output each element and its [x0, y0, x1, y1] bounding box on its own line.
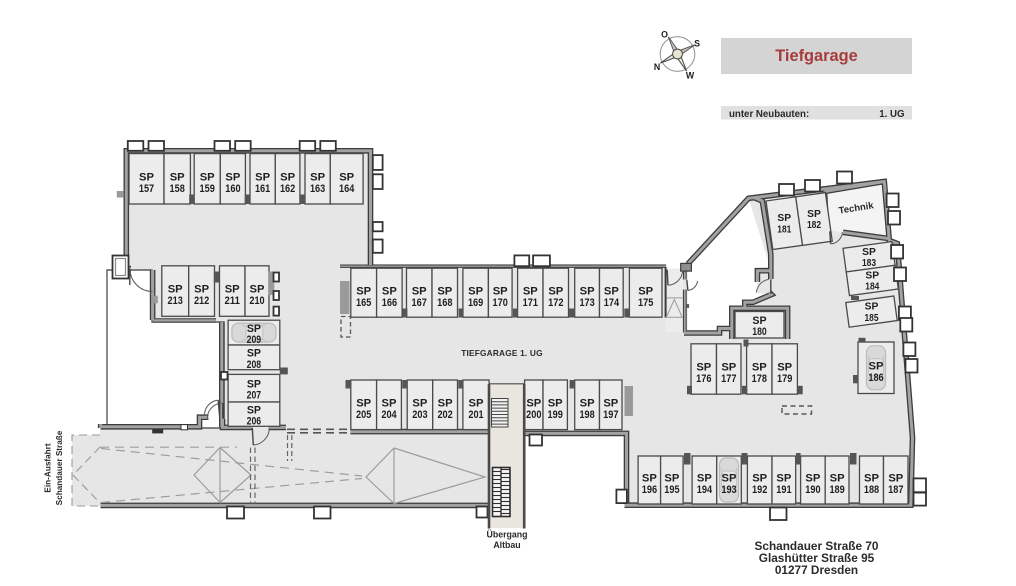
- svg-text:SP: SP: [255, 171, 270, 183]
- svg-text:SP: SP: [356, 285, 371, 297]
- svg-text:193: 193: [721, 484, 736, 496]
- svg-text:201: 201: [468, 409, 483, 421]
- svg-text:199: 199: [548, 409, 563, 421]
- svg-text:SP: SP: [339, 171, 354, 183]
- svg-text:SP: SP: [412, 397, 427, 409]
- svg-text:SP: SP: [310, 171, 325, 183]
- svg-text:SP: SP: [722, 473, 737, 485]
- svg-text:SP: SP: [752, 315, 766, 327]
- svg-text:204: 204: [381, 409, 397, 421]
- svg-text:SP: SP: [382, 285, 397, 297]
- svg-text:Übergang: Übergang: [486, 530, 527, 540]
- svg-text:157: 157: [139, 183, 154, 195]
- svg-text:170: 170: [493, 297, 508, 309]
- svg-text:173: 173: [579, 297, 594, 309]
- svg-text:208: 208: [247, 359, 262, 371]
- svg-text:206: 206: [247, 416, 262, 428]
- svg-text:unter Neubauten:: unter Neubauten:: [729, 109, 809, 120]
- svg-text:190: 190: [805, 484, 820, 496]
- svg-text:SP: SP: [548, 397, 563, 409]
- svg-text:SP: SP: [247, 378, 261, 390]
- svg-text:TIEFGARAGE 1. UG: TIEFGARAGE 1. UG: [461, 348, 543, 358]
- svg-text:SP: SP: [225, 284, 240, 296]
- svg-text:160: 160: [225, 183, 240, 195]
- svg-text:SP: SP: [830, 473, 845, 485]
- svg-text:SP: SP: [247, 404, 261, 416]
- svg-text:SP: SP: [200, 171, 215, 183]
- svg-text:210: 210: [249, 295, 264, 307]
- svg-text:180: 180: [752, 326, 767, 338]
- svg-text:177: 177: [721, 373, 736, 385]
- svg-text:169: 169: [468, 297, 483, 309]
- svg-text:184: 184: [865, 282, 879, 293]
- svg-text:191: 191: [776, 484, 791, 496]
- svg-text:181: 181: [777, 224, 791, 235]
- svg-text:SP: SP: [412, 285, 427, 297]
- svg-text:SP: SP: [697, 473, 712, 485]
- svg-text:198: 198: [579, 409, 594, 421]
- svg-text:Altbau: Altbau: [493, 540, 520, 550]
- svg-text:01277 Dresden: 01277 Dresden: [775, 563, 858, 577]
- svg-text:166: 166: [382, 297, 397, 309]
- svg-text:SP: SP: [437, 285, 452, 297]
- svg-text:SP: SP: [247, 323, 261, 335]
- svg-text:SP: SP: [250, 284, 265, 296]
- svg-text:207: 207: [247, 390, 262, 402]
- svg-text:161: 161: [255, 183, 270, 195]
- svg-text:194: 194: [697, 484, 713, 496]
- svg-text:SP: SP: [888, 473, 903, 485]
- svg-text:Ein-Ausfahrt: Ein-Ausfahrt: [44, 443, 53, 492]
- svg-text:SP: SP: [247, 348, 261, 360]
- svg-text:S: S: [694, 39, 700, 49]
- svg-text:SP: SP: [603, 397, 618, 409]
- svg-text:174: 174: [604, 297, 620, 309]
- svg-text:195: 195: [664, 484, 679, 496]
- svg-text:182: 182: [807, 220, 821, 231]
- svg-text:SP: SP: [865, 302, 879, 313]
- svg-text:SP: SP: [548, 285, 563, 297]
- svg-text:Tiefgarage: Tiefgarage: [775, 47, 858, 65]
- svg-text:SP: SP: [752, 362, 767, 374]
- svg-text:203: 203: [412, 409, 427, 421]
- svg-text:212: 212: [194, 295, 209, 307]
- svg-text:SP: SP: [862, 247, 876, 258]
- svg-text:171: 171: [523, 297, 538, 309]
- svg-text:187: 187: [888, 484, 903, 496]
- svg-text:SP: SP: [523, 285, 538, 297]
- svg-text:183: 183: [862, 258, 876, 269]
- svg-text:172: 172: [548, 297, 563, 309]
- svg-text:164: 164: [339, 183, 355, 195]
- svg-text:SP: SP: [696, 362, 711, 374]
- svg-text:SP: SP: [580, 285, 595, 297]
- svg-text:197: 197: [603, 409, 618, 421]
- svg-text:SP: SP: [869, 360, 884, 372]
- svg-text:167: 167: [412, 297, 427, 309]
- svg-text:162: 162: [280, 183, 295, 195]
- svg-text:1. UG: 1. UG: [879, 109, 904, 120]
- svg-text:N: N: [654, 62, 660, 72]
- svg-text:213: 213: [168, 295, 183, 307]
- svg-text:200: 200: [526, 409, 541, 421]
- svg-text:SP: SP: [807, 209, 821, 220]
- svg-text:SP: SP: [638, 285, 653, 297]
- svg-text:SP: SP: [776, 473, 791, 485]
- svg-text:179: 179: [777, 373, 792, 385]
- svg-text:189: 189: [829, 484, 844, 496]
- svg-text:159: 159: [200, 183, 215, 195]
- svg-text:168: 168: [437, 297, 452, 309]
- svg-text:192: 192: [752, 484, 767, 496]
- svg-text:SP: SP: [356, 397, 371, 409]
- svg-text:175: 175: [638, 297, 653, 309]
- svg-text:SP: SP: [864, 473, 879, 485]
- svg-text:176: 176: [696, 373, 711, 385]
- svg-text:SP: SP: [777, 213, 791, 224]
- svg-text:SP: SP: [170, 171, 185, 183]
- svg-text:SP: SP: [194, 284, 209, 296]
- svg-text:196: 196: [642, 484, 657, 496]
- svg-text:SP: SP: [664, 473, 679, 485]
- svg-text:163: 163: [310, 183, 325, 195]
- svg-text:O: O: [661, 30, 668, 40]
- svg-text:SP: SP: [777, 362, 792, 374]
- svg-text:SP: SP: [280, 171, 295, 183]
- svg-text:158: 158: [170, 183, 185, 195]
- svg-text:SP: SP: [805, 473, 820, 485]
- svg-text:SP: SP: [469, 397, 484, 409]
- svg-text:211: 211: [225, 295, 240, 307]
- svg-text:SP: SP: [493, 285, 508, 297]
- svg-text:185: 185: [864, 313, 878, 324]
- svg-text:SP: SP: [139, 171, 154, 183]
- svg-text:SP: SP: [168, 284, 183, 296]
- svg-text:SP: SP: [752, 473, 767, 485]
- svg-text:178: 178: [752, 373, 767, 385]
- svg-text:SP: SP: [438, 397, 453, 409]
- svg-text:SP: SP: [604, 285, 619, 297]
- svg-text:165: 165: [356, 297, 371, 309]
- svg-text:W: W: [686, 71, 695, 81]
- svg-text:SP: SP: [865, 271, 879, 282]
- svg-text:SP: SP: [642, 473, 657, 485]
- svg-text:SP: SP: [721, 362, 736, 374]
- svg-text:209: 209: [247, 334, 262, 346]
- svg-text:SP: SP: [526, 397, 541, 409]
- svg-text:SP: SP: [580, 397, 595, 409]
- svg-text:202: 202: [437, 409, 452, 421]
- svg-text:Schandauer Straße: Schandauer Straße: [55, 430, 64, 505]
- svg-text:205: 205: [356, 409, 371, 421]
- svg-text:SP: SP: [225, 171, 240, 183]
- svg-text:SP: SP: [468, 285, 483, 297]
- svg-text:188: 188: [864, 484, 879, 496]
- svg-text:186: 186: [868, 372, 883, 384]
- svg-text:SP: SP: [382, 397, 397, 409]
